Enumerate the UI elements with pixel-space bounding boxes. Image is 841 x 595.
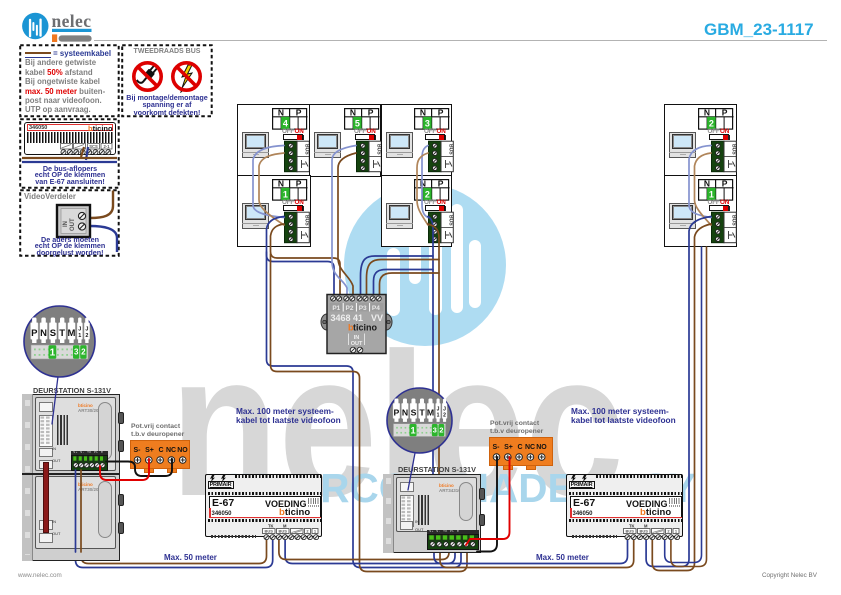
svg-text:2: 2 — [443, 412, 446, 418]
svg-text:P: P — [31, 328, 38, 339]
svg-text:N: N — [402, 407, 408, 417]
svg-text:1: 1 — [437, 412, 440, 418]
svg-text:P: P — [394, 407, 400, 417]
svg-text:1: 1 — [78, 333, 81, 339]
svg-text:S: S — [411, 407, 417, 417]
svg-text:2: 2 — [85, 333, 88, 339]
svg-text:S: S — [50, 328, 56, 339]
svg-text:M: M — [68, 328, 76, 339]
svg-text:J: J — [85, 326, 88, 332]
svg-text:T: T — [59, 328, 65, 339]
svg-text:T: T — [419, 407, 425, 417]
svg-text:1: 1 — [50, 347, 56, 358]
svg-text:2: 2 — [439, 426, 443, 435]
svg-text:3: 3 — [74, 347, 79, 356]
svg-text:M: M — [427, 407, 434, 417]
svg-text:N: N — [40, 328, 47, 339]
svg-text:J: J — [78, 326, 81, 332]
svg-text:3: 3 — [433, 426, 437, 435]
svg-text:1: 1 — [410, 425, 415, 435]
svg-text:2: 2 — [81, 347, 86, 356]
